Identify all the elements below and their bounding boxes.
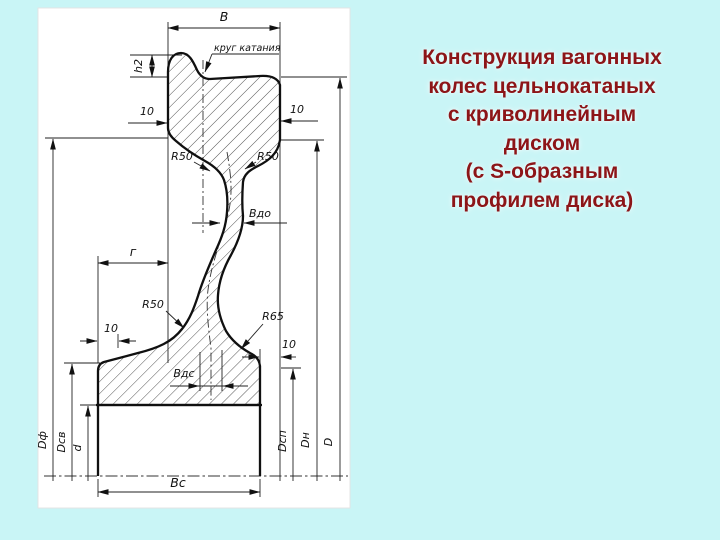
rolling-circle-label: круг катания — [214, 43, 281, 54]
dia-bore-label: d — [71, 443, 84, 451]
g-dim-label: г — [130, 244, 137, 259]
title-line: диском — [372, 130, 712, 159]
radius-bottom-right-label: R65 — [262, 310, 284, 323]
slide-background: { "title": { "lines": [ "Конструкция ваг… — [0, 0, 720, 540]
dia-left-outer-label: Dф — [36, 431, 49, 449]
hub-width-label: Вс — [170, 475, 186, 490]
offset-bottom-left-label: 10 — [104, 322, 118, 335]
title-line: Конструкция вагонных — [372, 44, 712, 73]
dia-right-mid-label: Dн — [299, 432, 312, 448]
disc-thickness-rim-label: Вдо — [249, 207, 271, 220]
radius-bottom-left-label: R50 — [142, 298, 164, 311]
title-line: колес цельнокатаных — [372, 73, 712, 102]
radius-top-left-label: R50 — [171, 150, 193, 163]
taper-top-right-label: 10 — [290, 103, 304, 116]
dia-right-inner-label: Dсп — [276, 430, 289, 452]
offset-bottom-right-label: 10 — [282, 338, 296, 351]
slide-title: Конструкция вагонных колес цельнокатаных… — [372, 44, 712, 215]
title-line: профилем диска) — [372, 187, 712, 216]
dia-rolling-label: D — [322, 438, 335, 446]
rim-width-label: В — [220, 9, 229, 24]
radius-top-right-label: R50 — [257, 150, 279, 163]
taper-top-left-label: 10 — [140, 105, 154, 118]
flange-height-label: h2 — [132, 59, 145, 73]
title-line: с криволинейным — [372, 101, 712, 130]
title-line: (с S-образным — [372, 158, 712, 187]
disc-thickness-hub-label: Вдс — [173, 367, 194, 380]
dia-left-mid-label: Dсв — [55, 431, 68, 452]
